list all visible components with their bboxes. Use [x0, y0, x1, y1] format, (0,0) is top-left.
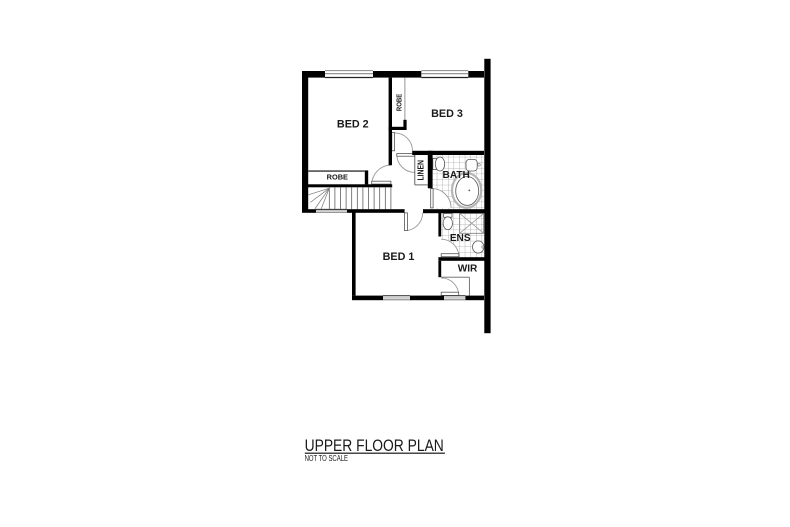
svg-text:BED 3: BED 3 [431, 108, 463, 120]
svg-text:ENS: ENS [450, 233, 471, 244]
svg-text:ROBE: ROBE [397, 93, 404, 111]
svg-text:BED 2: BED 2 [337, 118, 369, 130]
svg-text:LINEN: LINEN [417, 160, 426, 181]
svg-text:NOT TO SCALE: NOT TO SCALE [305, 454, 349, 463]
svg-text:WIR: WIR [458, 264, 478, 275]
svg-text:ROBE: ROBE [327, 172, 348, 181]
svg-text:BED 1: BED 1 [383, 251, 415, 263]
svg-text:BATH: BATH [443, 170, 470, 181]
svg-text:UPPER FLOOR PLAN: UPPER FLOOR PLAN [305, 437, 444, 455]
